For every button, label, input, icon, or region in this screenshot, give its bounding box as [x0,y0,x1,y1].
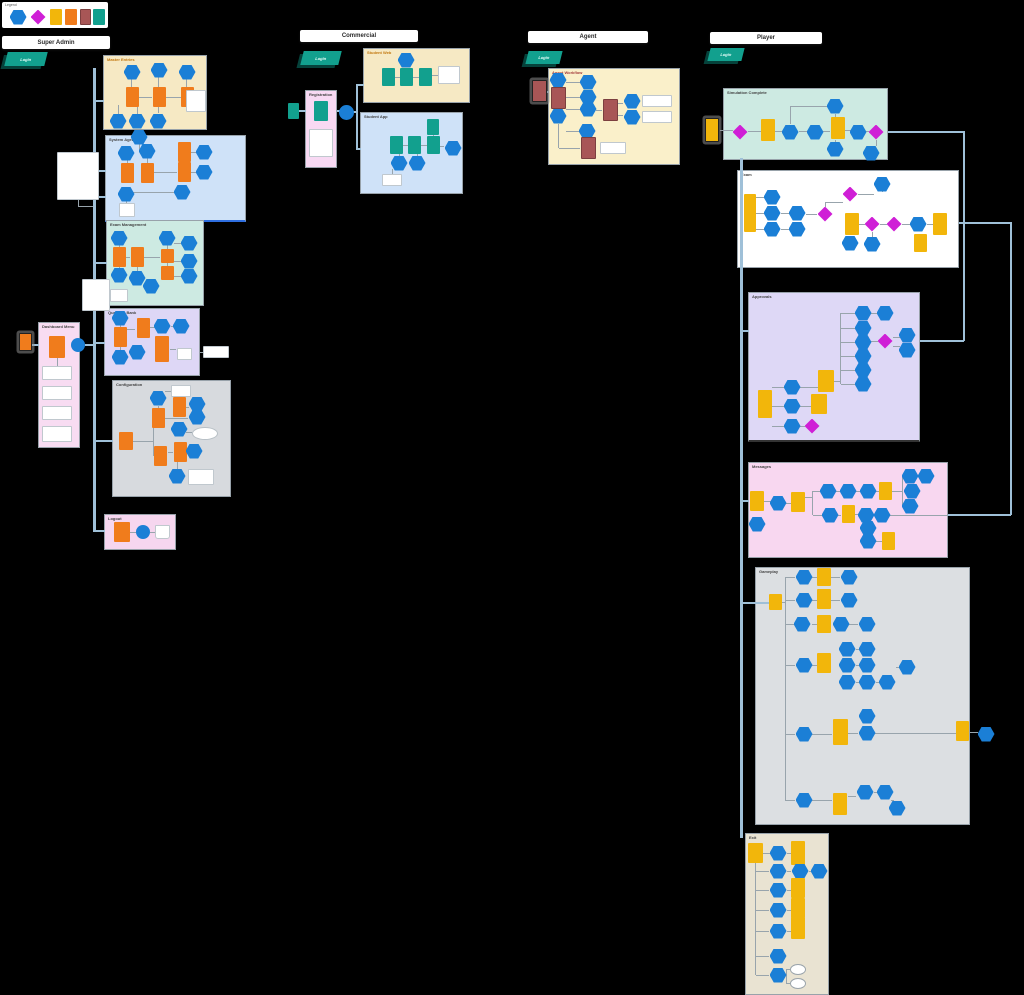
note-card[interactable] [203,346,229,358]
lane-banner: Commercial [300,30,418,42]
connector-line [191,152,196,153]
screen-rect-node[interactable] [288,103,299,119]
connector-line [786,734,795,735]
note-card[interactable] [171,385,191,397]
connector-line [841,370,855,371]
connector-line [813,515,822,516]
flowchart-canvas: Master EntriesSystem AgentsExam Manageme… [0,0,1024,995]
connector-line [836,491,840,492]
connector-line [841,384,855,385]
connector-line [959,222,1011,224]
container-title: Student App [364,114,388,119]
connector-line [871,341,878,342]
connector-line [743,330,749,332]
connector-line [618,115,623,116]
action-rect-node[interactable] [833,719,848,745]
connector-line [356,84,358,150]
connector-line [177,461,178,469]
connector-line [800,426,805,427]
connector-line [1010,222,1012,515]
action-rect-node[interactable] [811,394,827,414]
note-card[interactable] [42,406,72,420]
connector-line [756,975,769,976]
document-node[interactable] [155,525,170,539]
container-title: Student Web [367,50,391,55]
login-flag-text: Login [20,57,32,62]
note-card[interactable] [642,111,672,123]
connector-line [812,734,832,735]
screen-rect-node[interactable] [408,136,421,154]
connector-line [786,577,795,578]
connector-line [96,440,113,442]
container-title: Approvals [752,294,772,299]
connector-line [856,649,859,650]
action-rect-node[interactable] [152,408,165,428]
connector-line [856,682,859,683]
connector-line [872,232,873,237]
note-card[interactable] [600,142,626,154]
legend-screen-rect-node [93,9,105,25]
login-flag-text: Login [720,52,732,57]
connector-line [763,853,770,854]
screen-rect-node[interactable] [400,68,413,86]
action-rect-node[interactable] [154,446,167,466]
connector-line [888,131,964,133]
connector-line [781,213,789,214]
connector-line [756,213,764,214]
container-simulation-complete[interactable]: Simulation Complete [723,88,888,160]
container-title: Messages [752,464,771,469]
connector-line [800,387,818,388]
connector-line [781,229,789,230]
note-card[interactable] [188,469,214,485]
action-rect-node[interactable] [748,843,763,863]
connector-line [566,82,580,83]
connector-line [854,514,858,515]
connector-line [743,602,769,604]
connector-line [618,103,623,104]
screen-rect-node[interactable] [382,68,395,86]
connector-line [756,197,764,198]
action-rect-node[interactable] [818,370,834,392]
lane-banner-text: Player [757,35,775,41]
note-card[interactable] [642,95,672,107]
connector-line [756,931,769,932]
legend-action-rect-node [65,9,77,25]
connector-line [170,349,176,350]
connector-line [133,441,153,442]
action-rect-node[interactable] [750,491,764,511]
terminator-ellipse-node[interactable] [790,978,806,989]
connector-line [848,796,856,797]
connector-line [772,387,784,388]
connector-line [772,406,784,407]
screen-rect-node[interactable] [427,119,439,135]
connector-line [566,97,580,98]
connector-line [772,426,784,427]
connector-line [823,131,830,132]
connector-line [841,356,855,357]
action-rect-node[interactable] [153,87,166,107]
connector-line [154,172,177,173]
connector-line [720,130,733,131]
action-rect-node[interactable] [879,482,892,500]
connector-line [96,342,105,344]
connector-line [920,340,964,342]
connector-line [782,602,785,603]
connector-line [358,84,364,86]
connector-line [786,600,795,601]
container-title: Dashboard Menu [42,324,74,329]
connector-line [838,515,841,516]
connector-line [840,313,841,384]
connector-line [880,224,887,225]
connector-line [825,202,843,203]
connector-line [57,358,58,366]
action-rect-node[interactable] [113,247,126,267]
action-rect-node[interactable] [817,615,831,633]
lane-banner: Player [710,32,822,44]
note-card[interactable] [42,366,72,380]
screen-rect-node[interactable] [390,136,403,154]
connector-line [841,328,855,329]
connector-circle-node[interactable] [71,338,85,352]
connector-line [856,665,859,666]
error-rect-node[interactable] [603,99,618,121]
note-card[interactable] [110,289,128,302]
connector-line [118,105,119,114]
connector-line [831,577,840,578]
action-rect-node[interactable] [817,653,831,673]
login-flag-text: Login [315,56,327,61]
note-card[interactable] [119,203,135,217]
connector-line [806,214,817,215]
connector-line [902,476,903,506]
action-rect-node[interactable] [842,505,855,523]
connector-circle-node[interactable] [339,105,354,120]
connector-line [174,261,181,262]
connector-line [799,131,807,132]
connector-line [174,243,181,244]
connector-line [800,406,811,407]
connector-circle-node[interactable] [136,525,150,539]
action-rect-node[interactable] [119,432,133,450]
connector-line [740,158,743,838]
error-rect-node[interactable] [581,137,596,159]
action-rect-node[interactable] [178,162,191,182]
action-rect-node[interactable] [882,532,895,550]
connector-line [756,910,769,911]
connector-line [812,800,832,801]
connector-line [420,145,427,146]
lane-banner: Super Admin [2,36,110,49]
action-rect-node[interactable] [173,397,186,417]
screen-rect-node[interactable] [314,101,328,121]
connector-line [126,257,130,258]
connector-line [876,140,877,146]
lane-banner-text: Commercial [342,33,376,39]
legend-action-rect-node [50,9,62,25]
action-rect-node[interactable] [121,163,134,183]
note-card[interactable] [42,426,72,442]
screen-rect-node[interactable] [419,68,432,86]
connector-line [431,75,438,76]
action-rect-node[interactable] [141,163,154,183]
connector-line [841,313,855,314]
action-rect-node[interactable] [155,336,169,362]
connector-line [875,733,962,734]
process-hexagon-node[interactable] [978,727,995,742]
connector-line [969,732,978,733]
lane-banner-text: Agent [580,34,597,40]
connector-line [893,346,900,347]
connector-line [558,124,559,148]
action-rect-node[interactable] [114,522,130,542]
connector-line [168,452,173,453]
error-rect-node[interactable] [532,80,547,102]
action-rect-node[interactable] [956,721,969,741]
connector-line [786,969,787,984]
login-flag[interactable]: Login [707,48,744,61]
connector-line [790,107,791,124]
container-title: Exit [749,835,756,840]
connector-line [566,109,580,110]
action-rect-node[interactable] [914,234,927,252]
container-title: Configuration [116,382,142,387]
connector-line [858,194,874,195]
action-rect-node[interactable] [114,327,127,347]
action-rect-node[interactable] [833,793,847,815]
connector-line [439,146,444,147]
connector-line [139,97,152,98]
connector-line [358,148,361,150]
connector-line [748,131,761,132]
login-flag[interactable]: Login [4,52,47,66]
connector-line [756,229,764,230]
action-rect-node[interactable] [19,333,32,351]
note-card[interactable] [382,174,402,186]
connector-line [96,100,104,102]
connector-line [876,682,879,683]
action-rect-node[interactable] [933,213,947,235]
error-rect-node[interactable] [551,87,566,109]
connector-line [191,172,196,173]
connector-line [896,667,899,668]
connector-line [756,871,769,872]
connector-line [559,148,580,149]
action-rect-node[interactable] [791,878,805,898]
connector-line [813,491,820,492]
connector-line [756,956,769,957]
connector-line [174,276,181,277]
connector-line [841,342,855,343]
connector-line [412,77,419,78]
connector-line [764,501,771,502]
action-rect-node[interactable] [126,87,139,107]
connector-line [831,600,840,601]
action-rect-node[interactable] [791,492,805,512]
connector-line [786,624,794,625]
connector-line [874,792,877,793]
action-rect-node[interactable] [791,898,805,918]
terminator-ellipse-node[interactable] [790,964,806,975]
connector-line [787,871,791,872]
note-card[interactable] [42,386,72,400]
connector-line [871,313,877,314]
connector-line [127,329,135,330]
connector-line [165,418,188,419]
lane-banner-text: Super Admin [37,40,74,46]
connector-line [890,515,948,516]
action-rect-node[interactable] [758,390,772,418]
action-rect-node[interactable] [769,594,782,610]
note-card[interactable] [82,279,110,311]
lane-banner: Agent [528,31,648,43]
connector-line [756,890,769,891]
action-rect-node[interactable] [137,318,150,338]
connector-line [963,131,965,341]
connector-line [133,192,174,193]
action-rect-node[interactable] [831,117,845,139]
connector-line [755,863,756,975]
connector-line [891,491,902,492]
container-title: Simulation Complete [727,90,767,95]
connector-line [596,110,602,111]
connector-line [96,530,105,532]
action-rect-node[interactable] [161,249,174,263]
connector-line [805,497,812,498]
action-rect-node[interactable] [817,568,831,586]
connector-line [566,131,579,132]
container-title: Logout [108,516,122,521]
login-flag[interactable]: Login [525,51,562,64]
note-card[interactable] [177,348,192,360]
connector-line [786,800,795,801]
connector-line [31,344,39,346]
action-rect-node[interactable] [161,266,174,280]
cloud-note[interactable] [192,427,218,440]
connector-line [78,206,93,207]
note-card[interactable] [57,152,99,200]
screen-rect-node[interactable] [427,136,440,154]
action-rect-node[interactable] [174,442,187,462]
connector-line [743,500,749,502]
connector-line [144,257,160,258]
action-rect-node[interactable] [791,841,805,865]
action-rect-node[interactable] [131,247,144,267]
container-title: Registration [309,92,332,97]
action-rect-node[interactable] [761,119,775,141]
action-rect-node[interactable] [178,142,191,162]
connector-line [948,514,1011,516]
connector-line [845,130,851,131]
connector-line [96,262,107,264]
action-rect-node[interactable] [791,917,805,939]
container-title: Gameplay [759,569,778,574]
container-title: Exam Management [110,222,146,227]
legend-error-rect-node [80,9,91,25]
login-flag[interactable]: Login [300,51,341,65]
connector-line [786,665,795,666]
connector-line [298,110,306,112]
action-rect-node[interactable] [744,194,756,232]
connector-line [85,344,93,346]
connector-line [812,491,813,515]
note-card[interactable] [438,66,460,84]
legend-label: Legend [5,3,17,7]
action-rect-node[interactable] [845,213,859,235]
login-flag-text: Login [538,55,550,60]
container-title: Master Entries [107,57,135,62]
action-rect-node[interactable] [705,118,719,142]
connector-line [848,733,858,734]
note-card[interactable] [309,129,333,157]
container-approvals[interactable]: Approvals [748,292,920,442]
note-card[interactable] [186,90,206,112]
action-rect-node[interactable] [817,589,831,609]
connector-line [893,337,900,338]
connector-line [848,624,858,625]
connector-line [856,491,860,492]
connector-line [785,577,786,801]
action-rect-node[interactable] [49,336,65,358]
